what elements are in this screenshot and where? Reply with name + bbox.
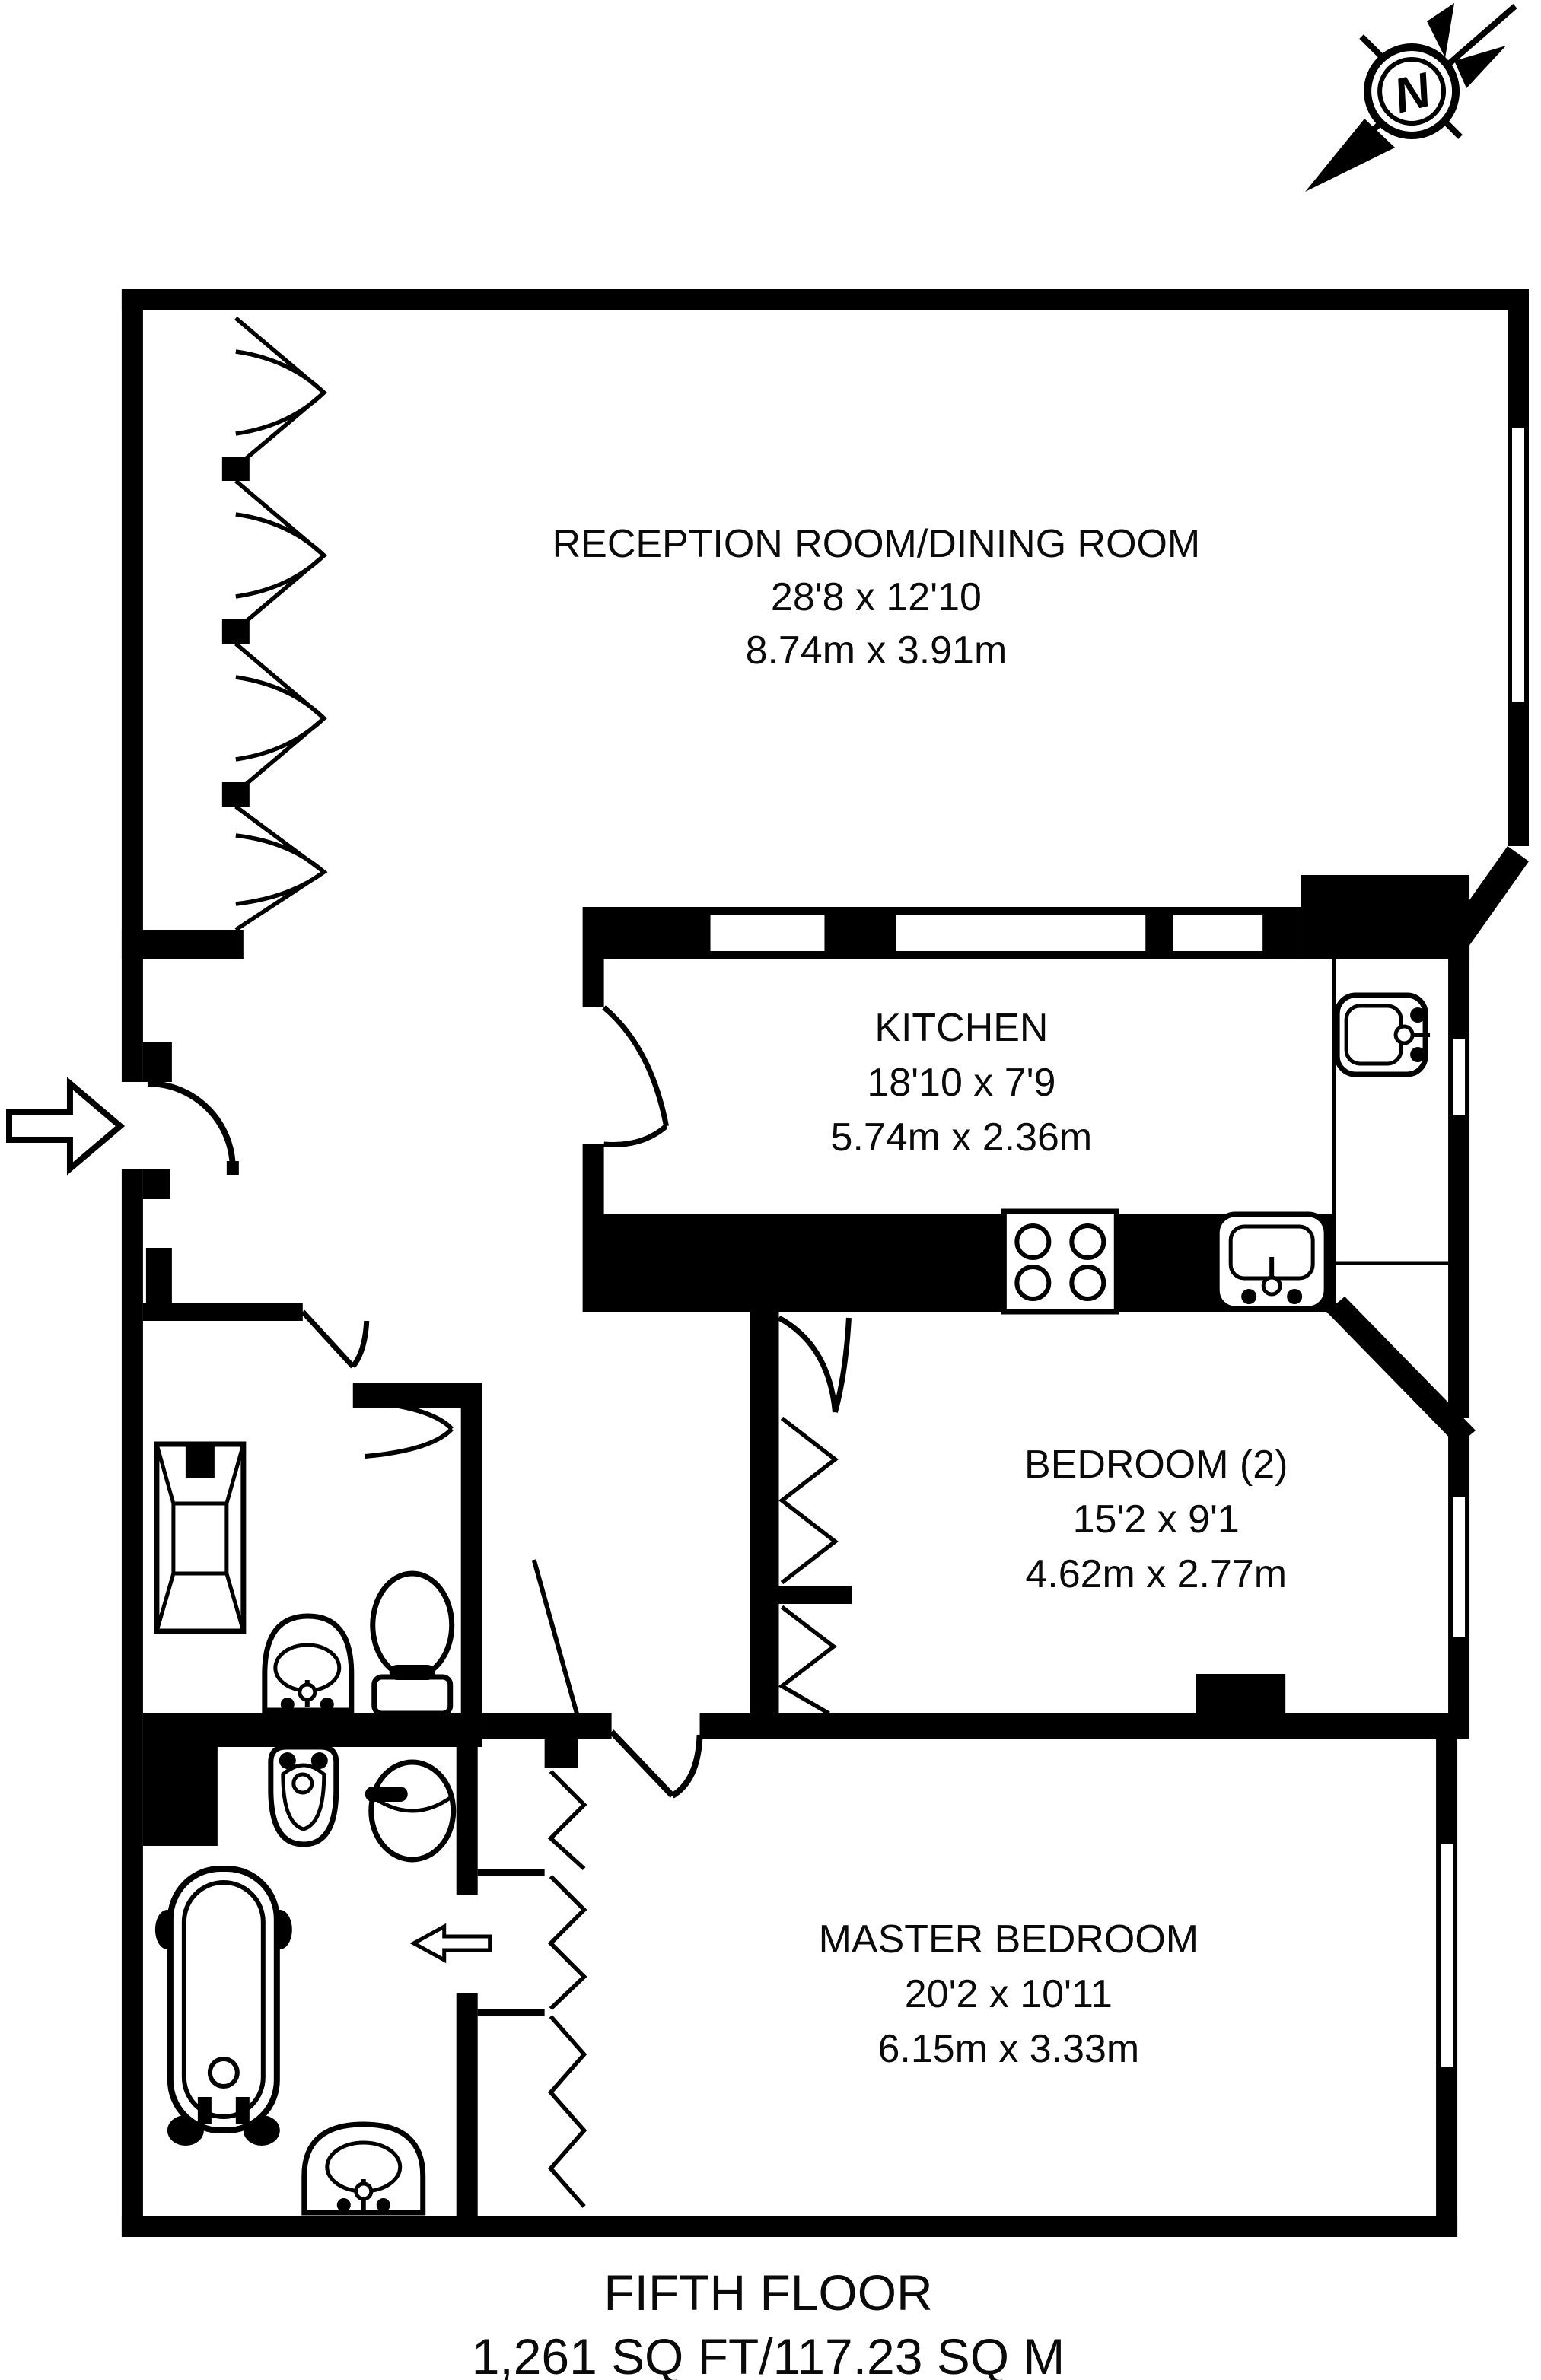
kitchen-sink-icon xyxy=(1337,995,1430,1074)
kitchen-imperial: 18'10 x 7'9 xyxy=(867,1061,1055,1105)
wall-master-top-right xyxy=(700,1713,1470,1739)
bathroom-void-block xyxy=(143,1747,218,1846)
wall-closet-bottom xyxy=(122,930,244,959)
wall-left-lower xyxy=(122,1169,143,2237)
bedroom2-door-icon xyxy=(778,1318,849,1412)
bifold-door-icon xyxy=(236,644,324,793)
wall-corridor-left xyxy=(461,1408,482,1713)
bidet-icon xyxy=(271,1747,336,1844)
reception-imperial: 28'8 x 12'10 xyxy=(771,575,982,619)
floor-area: 1,261 SQ FT/117.23 SQ M xyxy=(472,2328,1065,2380)
wall-left-upper xyxy=(122,289,143,1082)
bifold-door-icon xyxy=(551,1876,584,2009)
toilet-icon xyxy=(373,1573,452,1713)
kitchen-name: KITCHEN xyxy=(874,1006,1048,1050)
bathroom-direction-arrow-icon xyxy=(414,1927,490,1960)
wall-bathroom-divider-b xyxy=(457,1993,478,2216)
wall-top xyxy=(122,289,1529,310)
floorplan-page: N RECEPTION ROOM/DINING ROOM 28'8 x 12'1… xyxy=(0,0,1541,2380)
wall-kitchen-left-a xyxy=(583,959,604,1007)
bifold-jamb xyxy=(222,619,250,644)
reception-name: RECEPTION ROOM/DINING ROOM xyxy=(552,522,1201,566)
kitchen-door-icon xyxy=(604,1007,667,1145)
reception-metric: 8.74m x 3.91m xyxy=(746,628,1008,673)
master-metric: 6.15m x 3.33m xyxy=(878,2027,1140,2071)
toilet-icon xyxy=(365,1762,454,1860)
window xyxy=(709,913,826,953)
shower-icon xyxy=(157,1444,244,1631)
wall-entry-jamb-bottom xyxy=(143,1169,170,1199)
entry-door-stop xyxy=(227,1161,239,1175)
wall-kitchen-right xyxy=(1448,939,1469,1418)
bifold-door-icon xyxy=(551,2016,584,2207)
bedroom2-name: BEDROOM (2) xyxy=(1024,1443,1288,1487)
wall-bathroom-divider-a xyxy=(457,1747,478,1895)
master-imperial: 20'2 x 10'11 xyxy=(905,1972,1113,2016)
window xyxy=(1451,1038,1466,1117)
window xyxy=(894,913,1147,953)
window xyxy=(1451,1496,1466,1639)
showerroom-door-icon xyxy=(365,1402,452,1456)
bifold-door-icon xyxy=(782,1418,835,1583)
wall-kitchen-left-b xyxy=(583,1144,604,1214)
bifold-jamb xyxy=(222,457,250,481)
window xyxy=(1171,913,1264,953)
wall-entry-jamb-top xyxy=(143,1042,172,1082)
bifold-door-icon xyxy=(236,807,324,930)
bifold-door-icon xyxy=(782,1607,833,1713)
bifold-door-icon xyxy=(551,1771,584,1869)
floorplan-drawing: N RECEPTION ROOM/DINING ROOM 28'8 x 12'1… xyxy=(0,0,1541,2380)
bedroom2-imperial: 15'2 x 9'1 xyxy=(1073,1497,1240,1542)
doors xyxy=(148,1007,849,1796)
window xyxy=(1511,426,1526,703)
wall-master-top-left xyxy=(482,1713,612,1739)
master-name: MASTER BEDROOM xyxy=(819,1917,1199,1962)
bath-icon xyxy=(155,1869,292,2146)
wall-bedroom2-left xyxy=(750,1297,779,1713)
bedroom2-metric: 4.62m x 2.77m xyxy=(1025,1552,1287,1596)
kitchen-sink-icon xyxy=(1217,1214,1326,1309)
corridor-door-leaf xyxy=(534,1560,578,1718)
window xyxy=(1439,1843,1454,2068)
entry-door-swing-icon xyxy=(148,1083,233,1169)
wall-bedroom2-pier xyxy=(1196,1674,1285,1713)
bifold-door-icon xyxy=(236,481,324,630)
lobby-door-icon xyxy=(303,1312,367,1367)
wall-hall-pier xyxy=(146,1248,172,1309)
wall-bottom xyxy=(122,2216,1457,2237)
master-door-icon xyxy=(612,1732,700,1796)
basin-icon xyxy=(265,1616,352,1711)
showerroom-fixtures xyxy=(157,1444,452,1713)
floor-title: FIFTH FLOOR xyxy=(603,2264,932,2321)
wall-kitchen-corner xyxy=(1301,875,1469,959)
footer: FIFTH FLOOR 1,261 SQ FT/117.23 SQ M xyxy=(472,2264,1065,2380)
closet-shelf-2 xyxy=(478,2009,545,2016)
entrance-arrow-icon xyxy=(9,1083,120,1169)
hob-icon xyxy=(1004,1211,1116,1312)
basin-icon xyxy=(304,2124,423,2213)
wall-closet-stub xyxy=(545,1739,578,1768)
wall-bathroom-top xyxy=(143,1713,482,1747)
compass-icon: N xyxy=(1305,3,1515,192)
bifold-jamb xyxy=(222,782,250,807)
kitchen-metric: 5.74m x 2.36m xyxy=(831,1115,1093,1160)
bifold-door-icon xyxy=(236,318,324,467)
closet-shelf-1 xyxy=(478,1869,545,1876)
bedroom2-closet-divider xyxy=(778,1586,852,1604)
